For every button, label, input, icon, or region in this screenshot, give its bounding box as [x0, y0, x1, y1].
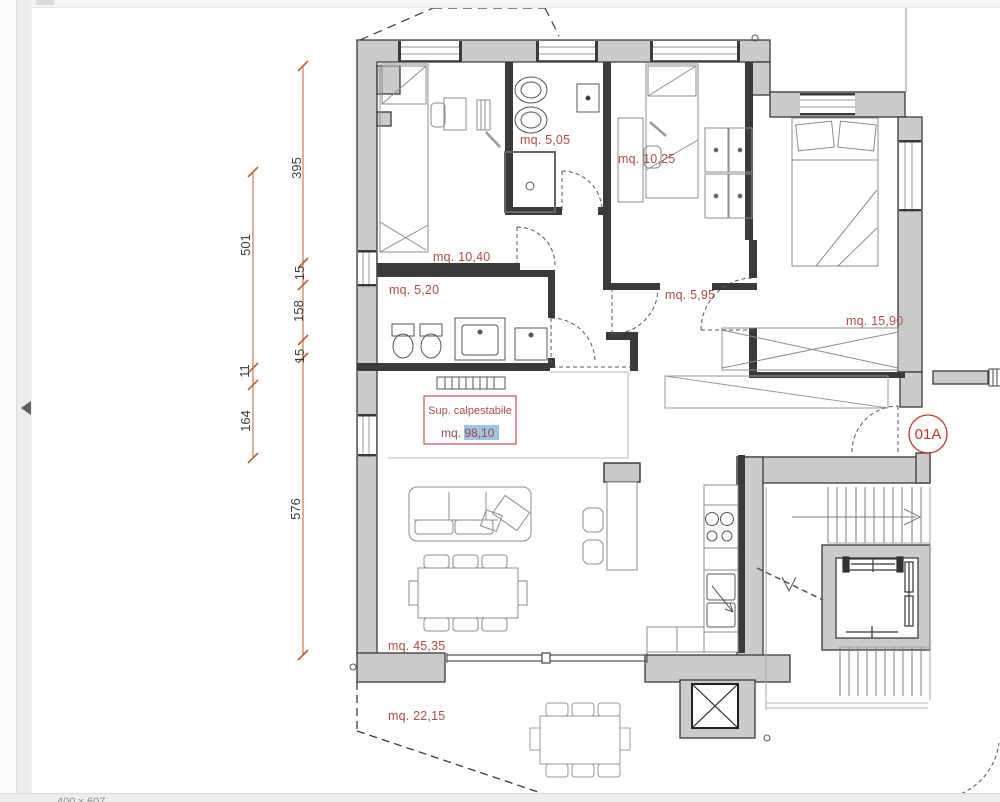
left-margin-strip: [0, 0, 17, 802]
terrace-furniture: [530, 703, 630, 777]
status-bar: 400 x 607: [0, 793, 1000, 802]
room-label-bathroom-2: mq. 5,20: [389, 283, 439, 297]
room-label-terrace: mq. 22,15: [388, 709, 445, 723]
room-label-hallway: mq. 5,95: [665, 288, 715, 302]
floor-plan-canvas[interactable]: 395 501 15 158 15 11 164 576 mq. 5,05 mq…: [0, 0, 1000, 802]
collapse-panel-arrow-icon[interactable]: [21, 401, 31, 415]
glass-door: [447, 653, 647, 663]
top-edge-bar: [0, 0, 1000, 8]
scrollbar-notch[interactable]: [36, 0, 54, 5]
roof-overhang-dashes: [360, 8, 559, 40]
dimension-label: 501: [238, 234, 253, 256]
unit-badge: 01A: [909, 415, 947, 453]
dimension-lines: 395 501 15 158 15 11 164 576: [237, 61, 308, 660]
room-label-bedroom-1: mq. 10,40: [433, 250, 490, 264]
room-label-living-room: mq. 45,35: [388, 639, 445, 653]
guide-lines: [388, 6, 906, 458]
sup-value-prefix: mq.: [441, 426, 464, 440]
kitchen: [583, 463, 738, 652]
dimension-label: 15: [292, 266, 307, 280]
elevator: [836, 557, 918, 638]
terrace: [357, 682, 630, 797]
edge-radiator: [989, 369, 1000, 386]
dimension-label: 158: [291, 300, 306, 322]
dimension-label: 395: [289, 157, 304, 179]
viewer-window: 395 501 15 158 15 11 164 576 mq. 5,05 mq…: [0, 0, 1000, 802]
unit-badge-label: 01A: [915, 426, 942, 443]
room-label-bedroom-2: mq. 10,25: [618, 152, 675, 166]
status-size-text: 400 x 607: [57, 795, 105, 802]
sup-calpestabile-title: Sup. calpestabile: [428, 405, 512, 417]
room-label-bathroom-1: mq. 5,05: [520, 133, 570, 147]
room-label-bedroom-3: mq. 15,90: [846, 314, 903, 328]
sup-value-selected[interactable]: 98,10: [464, 426, 494, 440]
dimension-label: 164: [238, 410, 253, 432]
dimension-label: 576: [288, 498, 303, 520]
dimension-label: 11: [237, 364, 252, 378]
svg-text:mq. 98,10: mq. 98,10: [441, 426, 495, 440]
bathroom-2-fixtures: [392, 318, 547, 360]
shaft-box: [692, 684, 738, 728]
furniture-bedroom-2: [618, 64, 752, 218]
dimension-label: 15: [292, 349, 307, 363]
furniture-bedroom-3: [665, 118, 898, 408]
sup-calpestabile-box: Sup. calpestabile mq. 98,10: [424, 396, 516, 444]
